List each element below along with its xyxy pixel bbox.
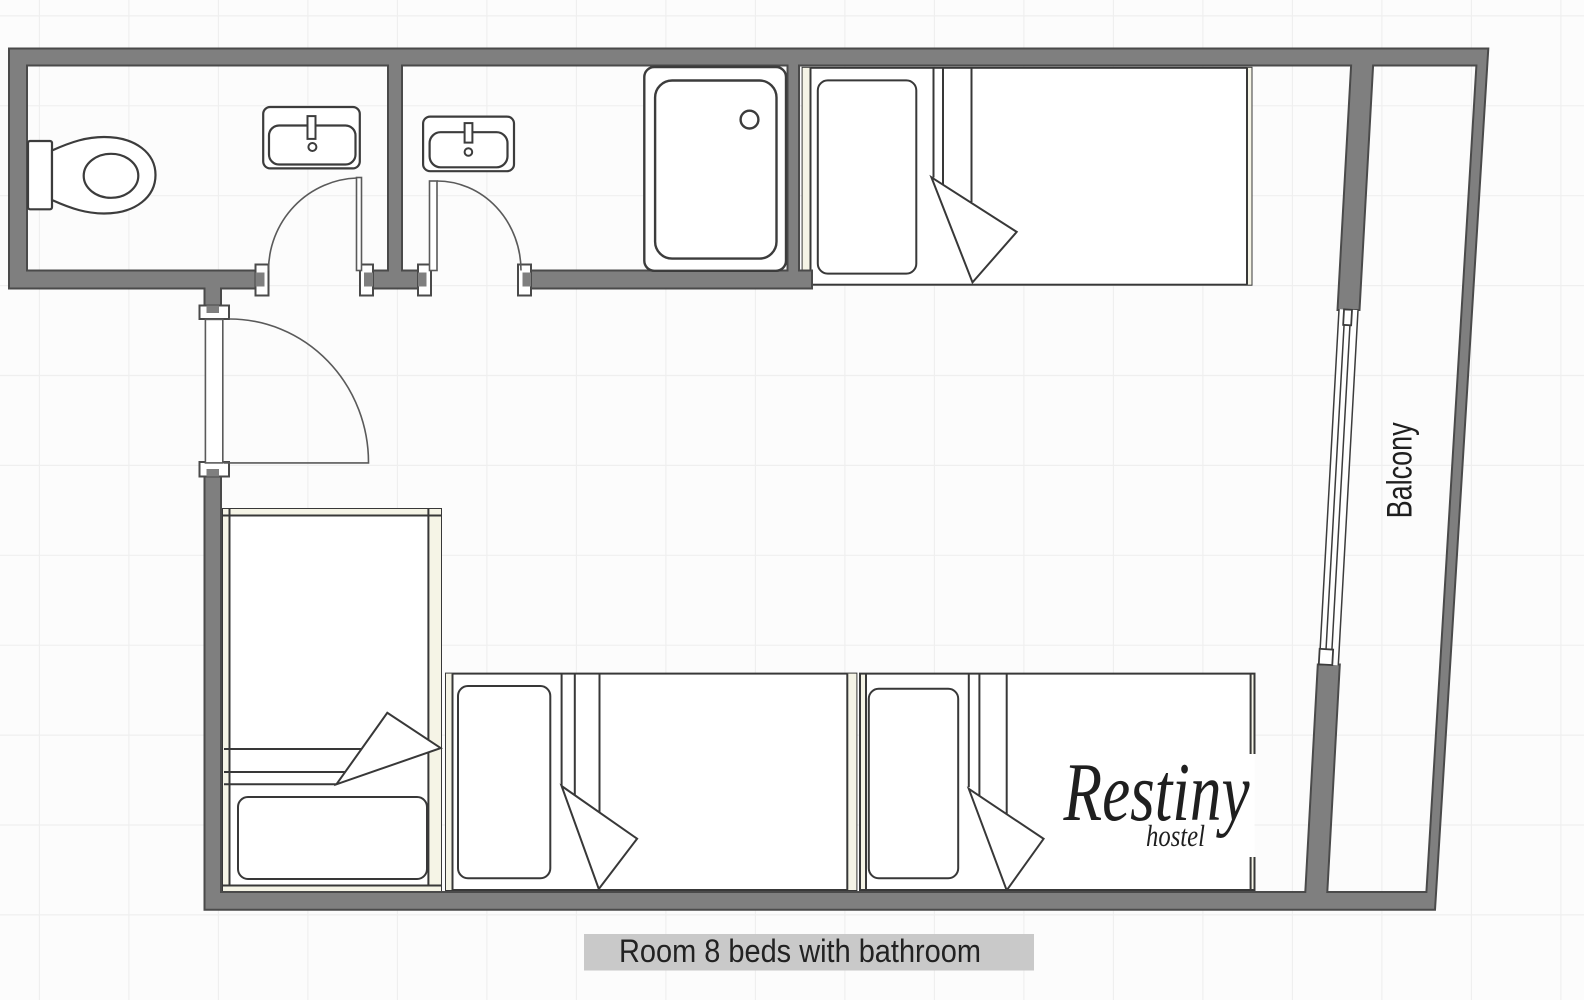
svg-text:Room 8 beds with bathroom: Room 8 beds with bathroom (619, 933, 981, 969)
svg-text:hostel: hostel (1146, 818, 1205, 853)
svg-text:Balcony: Balcony (1381, 422, 1420, 518)
